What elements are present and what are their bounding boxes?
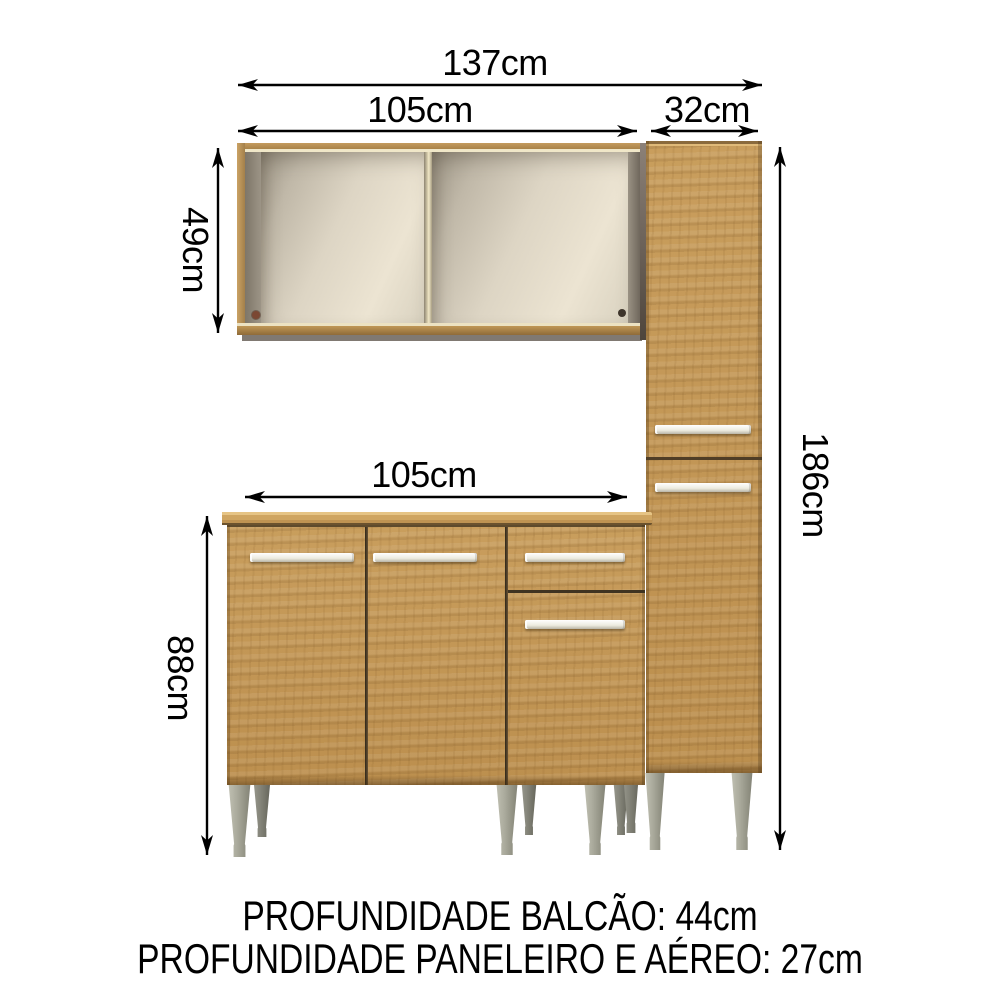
upper-cabinet-interior-left-panel: [245, 152, 261, 323]
upper-cabinet-left-edge: [237, 143, 245, 335]
depth-note-paneleiro-aereo: PROFUNDIDADE PANELEIRO E AÉREO: 27cm: [100, 938, 900, 980]
countertop: [222, 512, 652, 525]
base-width-label: 105cm: [324, 456, 524, 494]
tall-width-label: 32cm: [627, 91, 787, 129]
tall-cabinet-door-split: [646, 457, 762, 460]
upper-cabinet-compartment-right: [432, 152, 628, 323]
base-cabinet-door-divider-1: [365, 527, 368, 785]
base-cabinet-door-divider-2: [505, 527, 508, 785]
base-height-label: 88cm: [159, 578, 199, 778]
upper-cabinet: [237, 143, 640, 335]
upper-cabinet-bottom-edge: [237, 326, 640, 335]
upper-height-label: 49cm: [174, 150, 214, 350]
upper-cabinet-center-divider: [424, 152, 432, 323]
base-cabinet: [227, 525, 645, 785]
base-cabinet-bottom-shade: [227, 775, 645, 785]
tall-height-label: 186cm: [794, 385, 834, 585]
base-right-door-handle: [525, 620, 625, 629]
tall-cabinet-lower-door-handle: [655, 483, 751, 492]
upper-cabinet-shadow: [242, 335, 642, 341]
cabinet-leg: [520, 785, 538, 835]
tall-cabinet-upper-door-handle: [655, 425, 751, 434]
cabinet-leg: [643, 773, 667, 850]
depth-note-balcao: PROFUNDIDADE BALCÃO: 44cm: [100, 895, 900, 937]
cabinet-leg: [226, 785, 253, 857]
upper-cabinet-interior-right-panel: [628, 152, 640, 323]
cabinet-leg: [582, 785, 608, 855]
tall-cabinet: [646, 141, 762, 773]
upper-cabinet-compartment-left: [261, 152, 424, 323]
tall-cabinet-top-highlight: [646, 144, 762, 146]
base-cabinet-drawer-divider: [508, 590, 645, 593]
hinge-hole-right: [618, 309, 626, 317]
product-dimension-diagram: 137cm 105cm 32cm 49cm 105cm 88cm 186cm: [0, 0, 1000, 1000]
hinge-hole-left: [252, 311, 260, 319]
base-cabinet-left-edge: [227, 525, 230, 785]
cabinet-leg: [252, 785, 272, 837]
cabinet-leg: [729, 773, 755, 850]
base-cabinet-top-shadow: [227, 525, 645, 527]
total-width-label: 137cm: [390, 44, 600, 82]
cabinet-leg: [494, 785, 520, 855]
base-drawer-handle: [525, 553, 625, 562]
upper-width-label: 105cm: [320, 91, 520, 129]
base-cabinet-right-edge: [642, 525, 645, 785]
base-middle-door-handle: [373, 553, 477, 562]
cabinet-gap-shadow: [640, 143, 646, 340]
base-left-door-handle: [250, 553, 354, 562]
tall-cabinet-bottom-shade: [646, 761, 762, 773]
